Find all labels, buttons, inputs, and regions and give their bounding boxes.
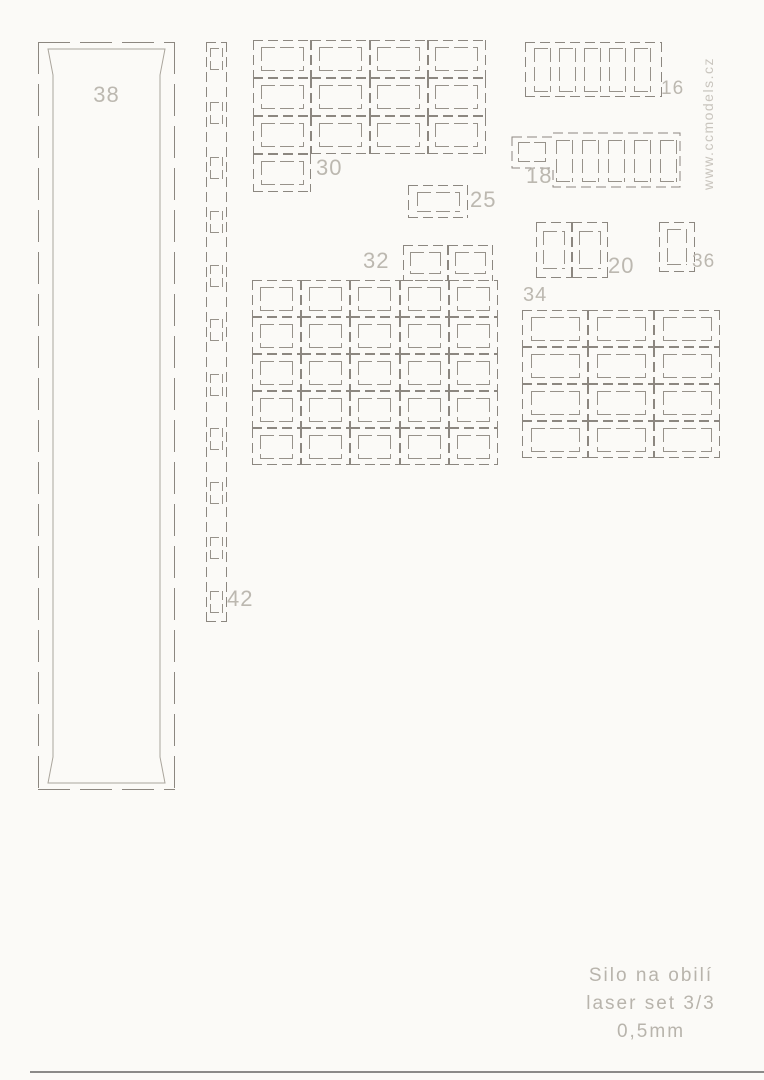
frame-cell xyxy=(252,280,301,317)
window-cutout xyxy=(260,398,293,422)
part-number-30: 30 xyxy=(316,157,342,179)
window-cutout xyxy=(358,324,391,348)
part-number-38: 38 xyxy=(38,84,175,106)
window-cutout xyxy=(377,47,420,71)
part-30-window-grid xyxy=(253,40,486,154)
window-cutout xyxy=(531,428,580,452)
window-cutout xyxy=(261,161,304,185)
frame-cell xyxy=(654,421,720,458)
frame-cell xyxy=(252,354,301,391)
window-cutout xyxy=(531,317,580,341)
frame-cell xyxy=(350,428,399,465)
part-20-double-frame xyxy=(536,222,608,278)
slot-cutout xyxy=(559,48,576,92)
window-cutout xyxy=(435,123,478,147)
window-cutout xyxy=(457,324,490,348)
frame-cell xyxy=(350,354,399,391)
frame-cell xyxy=(301,391,350,428)
window-cutout xyxy=(358,287,391,311)
hole-cutout xyxy=(210,537,223,559)
frame-cell xyxy=(301,317,350,354)
frame-cell xyxy=(588,421,654,458)
frame-cell xyxy=(400,354,449,391)
window-cutout xyxy=(531,354,580,378)
frame-cell xyxy=(400,317,449,354)
hole-cutout xyxy=(210,157,223,179)
frame-cell xyxy=(408,185,468,218)
window-cutout xyxy=(319,85,362,109)
part-number-16: 16 xyxy=(661,79,684,98)
part-number-20: 20 xyxy=(608,255,634,277)
frame-cell xyxy=(522,347,588,384)
window-cutout xyxy=(319,47,362,71)
window-cutout xyxy=(408,361,441,385)
window-cutout xyxy=(457,435,490,459)
window-cutout xyxy=(457,287,490,311)
part-number-32: 32 xyxy=(363,250,389,272)
frame-cell xyxy=(428,116,486,154)
bevel-outline xyxy=(38,42,175,790)
part-16-slot-strip xyxy=(525,42,662,97)
frame-cell xyxy=(301,428,350,465)
hole-cutout xyxy=(210,482,223,504)
frame-cell xyxy=(400,280,449,317)
frame-cell xyxy=(536,222,572,278)
hole-cutout xyxy=(210,102,223,124)
part-32-window-grid xyxy=(252,280,498,465)
part-18-slots xyxy=(556,140,677,182)
frame-cell xyxy=(301,280,350,317)
window-cutout xyxy=(455,252,486,274)
scan-edge-line xyxy=(30,1071,764,1073)
part-34-window-grid xyxy=(522,310,720,458)
frame-cell xyxy=(311,116,369,154)
window-cutout xyxy=(663,354,712,378)
frame-cell xyxy=(654,384,720,421)
window-cutout xyxy=(309,287,342,311)
window-cutout xyxy=(410,252,441,274)
window-cutout xyxy=(309,324,342,348)
window-cutout xyxy=(435,47,478,71)
part-number-25: 25 xyxy=(470,189,496,211)
slot-cutout xyxy=(534,48,551,92)
frame-cell xyxy=(400,428,449,465)
frame-cell xyxy=(311,40,369,78)
window-cutout xyxy=(358,435,391,459)
window-cutout xyxy=(261,47,304,71)
frame-cell xyxy=(428,40,486,78)
frame-cell xyxy=(522,384,588,421)
frame-cell xyxy=(522,421,588,458)
frame-cell xyxy=(449,317,498,354)
frame-cell xyxy=(448,245,493,281)
sheet-title-line1: Silo na obilí xyxy=(556,962,746,990)
window-cutout xyxy=(597,428,646,452)
frame-cell xyxy=(252,428,301,465)
frame-cell xyxy=(428,78,486,116)
window-cutout xyxy=(408,435,441,459)
frame-cell xyxy=(403,245,448,281)
frame-cell xyxy=(252,317,301,354)
frame-cell xyxy=(449,354,498,391)
window-cutout xyxy=(408,324,441,348)
watermark-url: www.ccmodels.cz xyxy=(700,40,716,190)
hole-cutout xyxy=(210,428,223,450)
frame-cell xyxy=(301,354,350,391)
hole-cutout xyxy=(210,48,223,70)
frame-cell xyxy=(449,391,498,428)
part-25-window-frame xyxy=(408,185,468,218)
part-number-36: 36 xyxy=(692,252,715,271)
window-cutout xyxy=(663,391,712,415)
frame-cell xyxy=(654,310,720,347)
frame-cell xyxy=(588,310,654,347)
window-cutout xyxy=(260,287,293,311)
frame-cell xyxy=(572,222,608,278)
slot-cutout xyxy=(634,140,651,182)
window-cutout xyxy=(358,361,391,385)
window-cutout xyxy=(597,317,646,341)
window-cutout xyxy=(597,354,646,378)
window-cutout xyxy=(518,142,546,162)
frame-cell xyxy=(370,78,428,116)
sheet-title-line3: 0,5mm xyxy=(556,1018,746,1046)
frame-cell xyxy=(253,40,311,78)
part-30-extra-cell xyxy=(253,154,311,192)
part-number-34: 34 xyxy=(523,285,547,305)
frame-cell xyxy=(522,310,588,347)
window-cutout xyxy=(260,435,293,459)
window-cutout xyxy=(408,287,441,311)
window-cutout xyxy=(309,435,342,459)
hole-cutout xyxy=(210,211,223,233)
hole-cutout xyxy=(210,265,223,287)
laser-cut-sheet: 38 42 30 25 32 16 18 20 36 34 www.ccmode… xyxy=(0,0,764,1080)
part-number-18: 18 xyxy=(526,165,552,187)
sheet-title-line2: laser set 3/3 xyxy=(556,990,746,1018)
frame-cell xyxy=(588,384,654,421)
frame-cell xyxy=(350,280,399,317)
window-cutout xyxy=(260,361,293,385)
slot-cutout xyxy=(609,48,626,92)
frame-cell xyxy=(350,391,399,428)
hole-cutout xyxy=(210,591,223,613)
slot-cutout xyxy=(556,140,573,182)
window-cutout xyxy=(309,361,342,385)
window-cutout xyxy=(457,398,490,422)
frame-cell xyxy=(449,280,498,317)
window-cutout xyxy=(579,231,601,269)
slot-cutout xyxy=(584,48,601,92)
window-cutout xyxy=(309,398,342,422)
slot-cutout xyxy=(608,140,625,182)
window-cutout xyxy=(408,398,441,422)
frame-cell xyxy=(370,40,428,78)
frame-cell xyxy=(400,391,449,428)
part-number-42: 42 xyxy=(227,588,253,610)
frame-cell xyxy=(588,347,654,384)
window-cutout xyxy=(319,123,362,147)
window-cutout xyxy=(261,123,304,147)
part-38-panel: 38 xyxy=(38,42,175,790)
frame-cell xyxy=(659,222,695,272)
window-cutout xyxy=(667,229,687,265)
slot-cutout xyxy=(660,140,677,182)
window-cutout xyxy=(457,361,490,385)
window-cutout xyxy=(377,123,420,147)
window-cutout xyxy=(531,391,580,415)
slot-cutout xyxy=(582,140,599,182)
part-36-single-frame xyxy=(659,222,695,272)
window-cutout xyxy=(260,324,293,348)
window-cutout xyxy=(377,85,420,109)
slot-cutout xyxy=(634,48,651,92)
part-42-strip xyxy=(206,42,227,622)
window-cutout xyxy=(417,192,460,212)
frame-cell xyxy=(311,78,369,116)
frame-cell xyxy=(253,78,311,116)
sheet-title: Silo na obilí laser set 3/3 0,5mm xyxy=(556,962,746,1046)
frame-cell xyxy=(350,317,399,354)
frame-cell xyxy=(654,347,720,384)
frame-cell xyxy=(449,428,498,465)
window-cutout xyxy=(358,398,391,422)
window-cutout xyxy=(597,391,646,415)
window-cutout xyxy=(543,231,565,269)
window-cutout xyxy=(435,85,478,109)
frame-cell xyxy=(253,116,311,154)
part-32-top-cells xyxy=(403,245,493,281)
frame-cell xyxy=(253,154,311,192)
window-cutout xyxy=(663,317,712,341)
frame-cell xyxy=(252,391,301,428)
hole-cutout xyxy=(210,319,223,341)
window-cutout xyxy=(663,428,712,452)
hole-cutout xyxy=(210,374,223,396)
window-cutout xyxy=(261,85,304,109)
frame-cell xyxy=(370,116,428,154)
